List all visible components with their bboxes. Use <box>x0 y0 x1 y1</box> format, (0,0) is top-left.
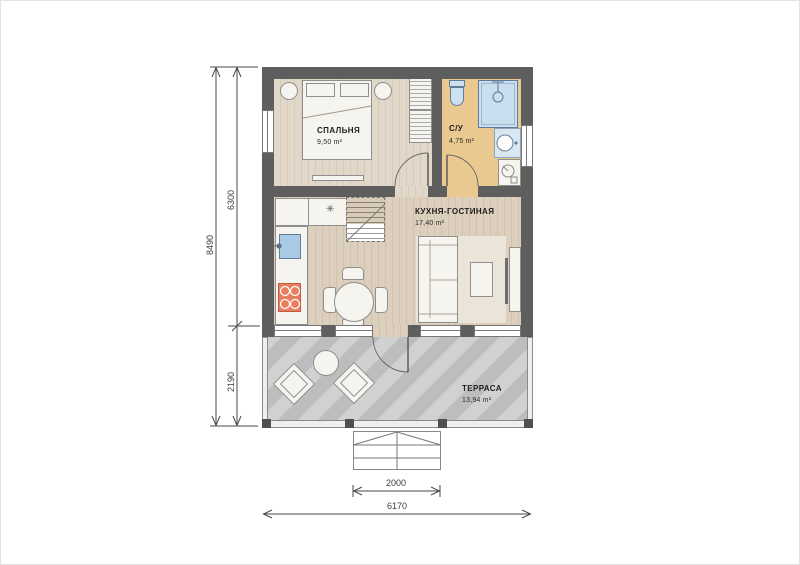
terrace-door-threshold <box>373 325 408 337</box>
terrace-side-table <box>313 350 339 376</box>
railing-post <box>438 419 447 428</box>
wardrobe <box>409 77 432 110</box>
room-area-terrace: 13,94 m² <box>462 397 491 404</box>
stove <box>278 283 301 312</box>
bathroom-door-threshold <box>447 186 478 197</box>
wall-right <box>521 79 533 325</box>
terrace-window <box>274 325 322 337</box>
floor-plan: ✳ <box>0 0 800 565</box>
dining-chair <box>342 267 364 280</box>
terrace-mullion <box>408 325 420 337</box>
toilet-bowl <box>450 87 464 106</box>
shower-tray <box>481 83 515 125</box>
room-label-bathroom: С/У <box>449 124 463 133</box>
tv-stand <box>509 247 521 312</box>
room-label-kitchen-living: КУХНЯ-ГОСТИНАЯ <box>415 207 494 216</box>
dim-overall-width: 6170 <box>372 501 422 511</box>
fridge-icon: ✳ <box>326 204 334 215</box>
coffee-table <box>470 262 493 297</box>
washbasin-counter <box>494 128 521 158</box>
nightstand <box>280 82 298 100</box>
room-area-bedroom: 9,50 m² <box>317 139 342 146</box>
wardrobe <box>409 110 432 143</box>
terrace-mullion <box>322 325 335 337</box>
terrace-railing-bottom <box>262 420 533 428</box>
terrace-window <box>335 325 373 337</box>
entry-steps <box>353 431 441 470</box>
room-area-bathroom: 4,75 m² <box>449 138 474 145</box>
bedroom-door-threshold <box>395 186 428 197</box>
toilet <box>449 80 465 87</box>
dim-porch-width: 2000 <box>371 478 421 488</box>
pillow <box>306 83 335 97</box>
wall-terrace-corner <box>262 325 274 337</box>
railing-post <box>524 419 533 428</box>
room-label-bedroom: СПАЛЬНЯ <box>317 126 360 135</box>
sofa <box>418 236 458 323</box>
room-label-terrace: ТЕРРАСА <box>462 384 502 393</box>
railing-post <box>345 419 354 428</box>
bedroom-bench <box>312 175 364 181</box>
dining-chair <box>375 287 388 313</box>
wall-terrace-corner <box>521 325 533 337</box>
terrace-mullion <box>461 325 474 337</box>
washing-machine <box>498 159 521 186</box>
bedroom-window <box>262 110 274 153</box>
dim-overall-height: 8490 <box>205 228 215 262</box>
room-area-kitchen-living: 17,40 m² <box>415 220 444 227</box>
pillow <box>340 83 369 97</box>
wall-interior <box>478 186 521 197</box>
wall-top <box>262 67 533 79</box>
floor-plan-page: { "rooms": [ {"name": "СПАЛЬНЯ", "area":… <box>0 0 800 565</box>
bathroom-window <box>521 125 533 167</box>
railing-post <box>262 419 271 428</box>
terrace-window <box>474 325 521 337</box>
dining-table <box>334 282 374 322</box>
wall-interior <box>428 186 447 197</box>
dim-house-depth: 6300 <box>226 183 236 217</box>
wall-bedroom-bathroom <box>432 79 442 197</box>
terrace-railing-right <box>527 337 533 428</box>
kitchen-sink <box>279 234 301 259</box>
nightstand <box>374 82 392 100</box>
tv <box>505 258 508 304</box>
terrace-railing-left <box>262 337 268 428</box>
dim-terrace-depth: 2190 <box>226 365 236 399</box>
terrace-window <box>420 325 461 337</box>
staircase-lower-steps <box>347 224 384 241</box>
wall-interior <box>274 186 395 197</box>
